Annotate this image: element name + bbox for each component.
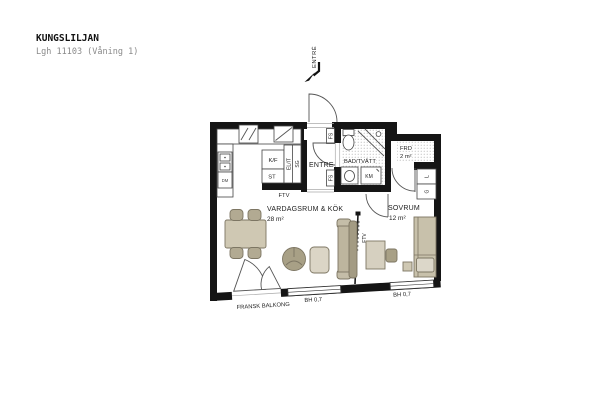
shaft-fs-top-label: FS: [329, 132, 335, 139]
bedroom-furniture: [366, 217, 436, 277]
bathroom-label: BAD/TVÄTT: [344, 158, 376, 165]
dining-chair: [248, 248, 261, 259]
electrical-it-label: EL/IT: [287, 158, 293, 170]
washing-machine-label: KM: [365, 174, 373, 180]
lounge: [283, 219, 358, 279]
dining-set: [225, 210, 266, 259]
wall-frd-top: [391, 134, 441, 141]
shower-head: [376, 132, 381, 137]
wall-bath-bottom: [334, 185, 391, 192]
side-table: [310, 247, 329, 273]
bedroom-area: 12 m²: [389, 215, 406, 222]
wardrobes: L G: [417, 169, 436, 199]
dishwasher-label: DM: [222, 178, 229, 183]
floorplan-canvas: KUNGSLILJAN Lgh 11103 (Våning 1) ENTRÉ: [0, 0, 600, 400]
french-door-leaf-right: [260, 266, 281, 290]
sliding-wardrobe-label: SG: [295, 160, 301, 167]
living-room-label: VARDAGSRUM & KÖK: [267, 205, 343, 213]
bedroom-door: [366, 194, 388, 217]
bedroom-label: SOVRUM: [388, 205, 420, 212]
french-balcony-label: FRANSK BALKONG: [237, 302, 291, 311]
storage-room: FRD 2 m²: [397, 141, 434, 162]
sofa-back: [349, 221, 357, 278]
frd-label: FRD: [400, 146, 412, 152]
bedroom-window-label: BH 0,7: [393, 292, 411, 299]
tv-outlet-kitchen-label: FTV: [279, 193, 290, 199]
entrance-door: [309, 94, 337, 122]
hall-label: ENTRE: [309, 162, 334, 169]
nightstand: [403, 262, 412, 271]
shaft-fs-bottom-label: FS: [329, 174, 335, 181]
wall-bath-right: [385, 129, 391, 192]
living-window-label: BH 0,7: [304, 297, 322, 304]
sofa-seat: [338, 226, 350, 272]
dining-chair: [230, 210, 243, 221]
wall-top-right: [332, 122, 397, 129]
wall-left: [210, 122, 217, 301]
desk-chair: [386, 249, 397, 262]
toilet-bowl: [343, 135, 354, 150]
sofa: [337, 219, 357, 279]
frd-area: 2 m²: [400, 154, 412, 160]
hob: [239, 125, 258, 143]
entry-label: ENTRÉ: [311, 46, 318, 68]
living-room-area: 28 m²: [267, 216, 284, 223]
wall-closet-bottom: [262, 183, 307, 190]
bedroom-window: [390, 280, 434, 290]
cleaning-closet-label: ST: [268, 175, 276, 181]
linen-closet-label: L: [425, 175, 431, 178]
page-title: KUNGSLILJAN: [36, 33, 99, 44]
wall-bath-left-top: [334, 129, 341, 143]
bed-pillow: [417, 258, 435, 272]
bath-sink-bowl: [345, 171, 355, 182]
sink-drain-1: [224, 157, 226, 159]
frd-door: [392, 168, 415, 192]
french-door-leaf-left: [232, 258, 266, 291]
living-window: [288, 286, 341, 296]
dining-chair: [230, 248, 243, 259]
dining-chair: [248, 210, 261, 221]
wardrobe-label: G: [425, 189, 431, 193]
desk: [366, 241, 385, 269]
page-subtitle: Lgh 11103 (Våning 1): [36, 46, 138, 57]
sink-drain-2: [224, 166, 226, 168]
fridge-freezer-label: K/F: [268, 158, 277, 164]
dining-table: [225, 220, 266, 248]
